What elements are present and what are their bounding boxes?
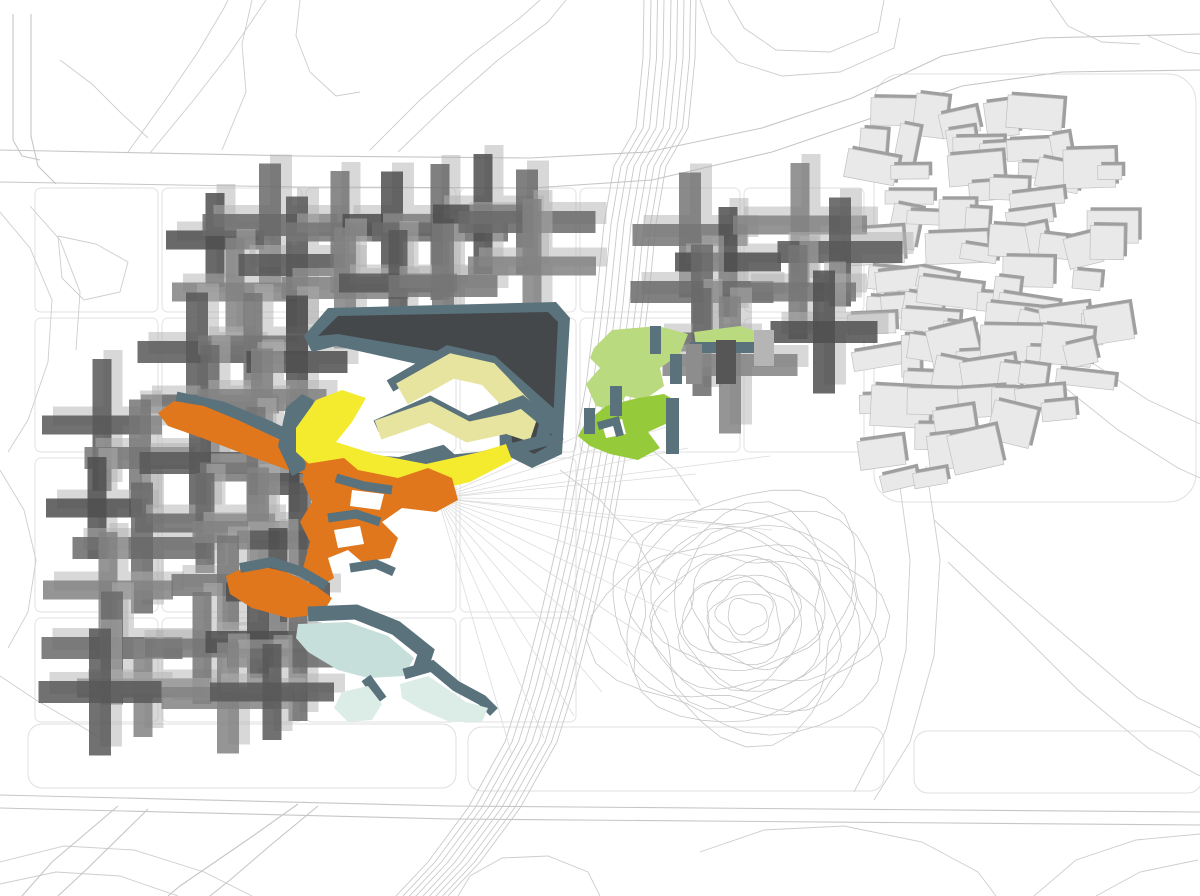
village-building-footprint (857, 436, 906, 471)
village-building (891, 162, 933, 180)
village-building-footprint (1006, 95, 1064, 132)
village-building (1041, 396, 1080, 422)
village-building (856, 432, 909, 471)
village-building (1072, 266, 1105, 291)
gray-slab-a (686, 344, 702, 384)
green-slate-bar-5 (666, 398, 679, 454)
village-building-footprint (891, 165, 929, 179)
green-slate-bar-3 (610, 386, 622, 416)
village-building (1098, 162, 1126, 180)
green-slate-bar-6 (584, 408, 595, 434)
village-building (1090, 222, 1128, 260)
village-building-footprint (1090, 225, 1124, 259)
village-building-footprint (1098, 165, 1122, 179)
green-slate-bar-4 (670, 354, 682, 384)
village-building (885, 187, 937, 204)
green-slate-bar-1 (650, 326, 661, 354)
village-building-footprint (1041, 400, 1077, 422)
village-building-footprint (1018, 362, 1048, 386)
village-building-footprint (885, 191, 934, 204)
site-plan-svg (0, 0, 1200, 896)
village-building-footprint (1072, 270, 1102, 291)
masterplan-canvas (0, 0, 1200, 896)
village-building (1006, 91, 1068, 131)
gray-slab-c (754, 330, 774, 366)
gray-slab-b (716, 340, 736, 384)
